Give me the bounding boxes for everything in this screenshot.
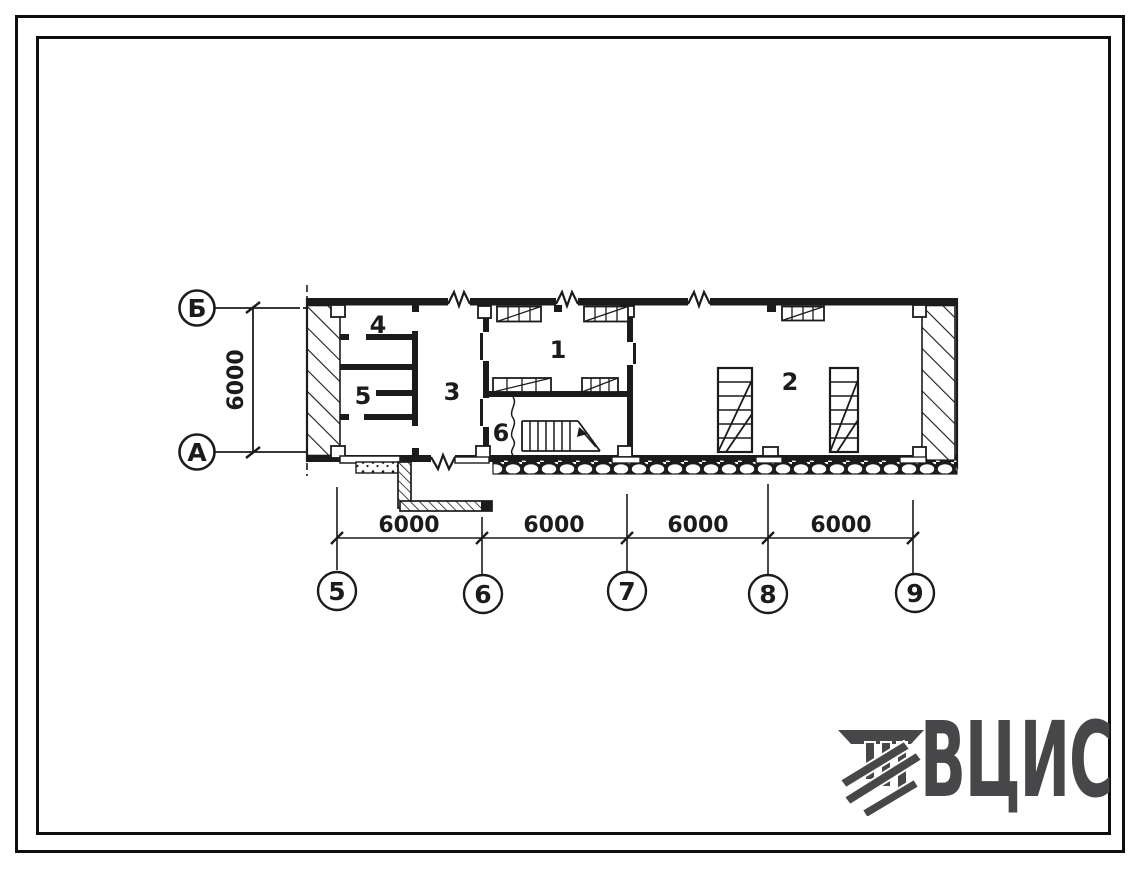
logo-text: ВЦИС <box>920 708 1112 812</box>
vertical-dimension-label: 6000 <box>224 349 249 410</box>
dim-label-5-6: 6000 <box>378 513 439 538</box>
room-label-3: 3 <box>444 378 461 406</box>
axis-label-7: 7 <box>618 577 635 606</box>
window-block <box>497 307 541 322</box>
entrance-ramp-hatched <box>400 501 492 511</box>
comb-wall-vertical <box>412 331 418 426</box>
dotted-pad <box>356 462 398 473</box>
door-leaf <box>480 333 483 360</box>
window-block <box>582 378 618 392</box>
dim-label-6-7: 6000 <box>523 513 584 538</box>
axis-label-6: 6 <box>474 580 491 609</box>
wall-axis-6 <box>480 306 489 455</box>
break-wavy-line <box>512 397 515 455</box>
dim-label-8-9: 6000 <box>810 513 871 538</box>
axis-markers-left: Б А 6000 <box>180 285 315 480</box>
interior-partitions <box>340 305 776 455</box>
equipment-rack <box>830 368 858 452</box>
partition-room4-room5 <box>340 364 414 370</box>
room-label-6: 6 <box>493 419 510 447</box>
equipment-rack <box>718 368 752 452</box>
axis-label-8: 8 <box>759 580 776 609</box>
axis-label-5: 5 <box>328 577 345 606</box>
left-end-wall-hatched <box>307 306 340 456</box>
right-end-wall-hatched <box>922 306 955 463</box>
window-block <box>584 307 628 322</box>
drawing-sheet: Б А 6000 <box>0 0 1139 869</box>
axis-label-9: 9 <box>906 579 923 608</box>
axis-label-A: А <box>187 438 207 467</box>
wall-axis-7 <box>627 306 636 455</box>
top-exterior-wall <box>307 298 957 306</box>
door-leaf <box>633 343 636 364</box>
blind-area-band <box>493 460 957 474</box>
logo-icon <box>834 724 928 816</box>
staircase <box>512 397 600 455</box>
axis-label-B: Б <box>187 294 206 323</box>
porch-slab <box>455 457 489 463</box>
window-block <box>782 307 824 321</box>
window-block <box>493 378 551 392</box>
room-label-4: 4 <box>370 311 387 339</box>
room-label-1: 1 <box>550 336 567 364</box>
window-blocks <box>493 307 824 393</box>
room-label-5: 5 <box>355 382 372 410</box>
door-leaf <box>480 399 483 426</box>
room-label-2: 2 <box>782 368 799 396</box>
dim-label-7-8: 6000 <box>667 513 728 538</box>
